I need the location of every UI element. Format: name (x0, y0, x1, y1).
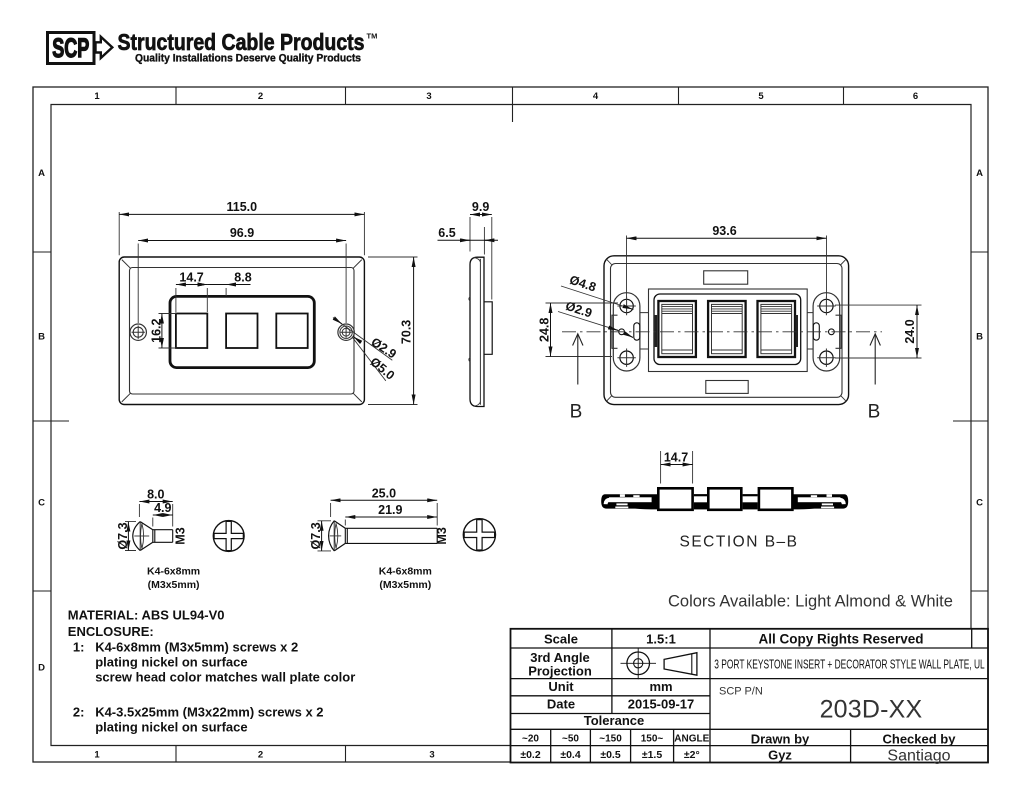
svg-text:Colors Available: Light Almond: Colors Available: Light Almond & White (668, 593, 953, 611)
svg-text:MATERIAL: ABS UL94-V0: MATERIAL: ABS UL94-V0 (68, 608, 225, 623)
svg-text:1: 1 (94, 91, 100, 102)
svg-text:All Copy Rights Reserved: All Copy Rights Reserved (758, 632, 923, 647)
svg-text:93.6: 93.6 (712, 224, 736, 238)
svg-text:24.8: 24.8 (538, 318, 552, 342)
svg-text:screw head color matches wall: screw head color matches wall plate colo… (95, 670, 355, 685)
svg-text:Gyz: Gyz (768, 748, 792, 763)
svg-text:1:: 1: (73, 640, 85, 655)
svg-text:±0.4: ±0.4 (560, 749, 581, 761)
svg-text:Unit: Unit (548, 679, 574, 694)
svg-text:K4-6x8mm: K4-6x8mm (379, 565, 432, 577)
svg-text:16.2: 16.2 (149, 318, 163, 342)
svg-text:ENCLOSURE:: ENCLOSURE: (68, 624, 154, 639)
svg-text:14.7: 14.7 (664, 450, 688, 464)
svg-text:4: 4 (593, 91, 599, 102)
svg-text:Projection: Projection (528, 664, 592, 679)
svg-text:M3: M3 (435, 527, 449, 544)
svg-text:plating nickel on surface: plating nickel on surface (95, 720, 247, 735)
svg-text:±1.5: ±1.5 (642, 749, 663, 761)
svg-text:2: 2 (258, 91, 263, 102)
svg-text:Checked by: Checked by (883, 731, 957, 746)
svg-text:ANGLE: ANGLE (674, 733, 709, 744)
svg-text:25.0: 25.0 (372, 486, 396, 500)
svg-text:C: C (38, 498, 45, 509)
svg-text:203D-XX: 203D-XX (820, 696, 923, 724)
svg-text:B: B (976, 332, 983, 343)
svg-text:1.5:1: 1.5:1 (646, 631, 676, 646)
svg-text:9.9: 9.9 (472, 200, 489, 214)
svg-text:B: B (570, 402, 583, 423)
svg-text:SECTION B–B: SECTION B–B (680, 534, 799, 551)
svg-text:~20: ~20 (522, 733, 539, 744)
svg-text:SCP: SCP (52, 33, 89, 63)
svg-text:K4-6x8mm (M3x5mm) screws x 2: K4-6x8mm (M3x5mm) screws x 2 (95, 640, 298, 655)
svg-text:Date: Date (547, 696, 575, 711)
svg-text:3: 3 (426, 91, 431, 102)
svg-text:Santiago: Santiago (887, 747, 950, 764)
svg-text:70.3: 70.3 (399, 320, 413, 344)
svg-text:~50: ~50 (562, 733, 579, 744)
svg-text:A: A (38, 168, 45, 179)
svg-text:M3: M3 (174, 527, 188, 544)
svg-text:2: 2 (258, 750, 263, 761)
svg-text:A: A (976, 168, 983, 179)
svg-text:Quality Installations Deserve: Quality Installations Deserve Quality Pr… (135, 53, 361, 65)
svg-text:SCP P/N: SCP P/N (719, 686, 763, 698)
svg-text:B: B (868, 402, 881, 423)
svg-text:1: 1 (94, 750, 100, 761)
svg-text:21.9: 21.9 (378, 503, 402, 517)
svg-text:Scale: Scale (544, 631, 578, 646)
svg-text:Structured Cable Products: Structured Cable Products (118, 29, 365, 55)
svg-text:8.8: 8.8 (234, 271, 251, 285)
svg-text:6.5: 6.5 (438, 226, 455, 240)
svg-text:B: B (38, 332, 45, 343)
svg-text:Ø7.3: Ø7.3 (116, 522, 130, 549)
svg-text:2015-09-17: 2015-09-17 (628, 696, 695, 711)
svg-text:3 PORT KEYSTONE INSERT + DECOR: 3 PORT KEYSTONE INSERT + DECORATOR STYLE… (714, 658, 984, 672)
svg-text:5: 5 (758, 91, 764, 102)
svg-text:(M3x5mm): (M3x5mm) (379, 579, 431, 591)
svg-text:C: C (976, 498, 983, 509)
svg-text:K4-6x8mm: K4-6x8mm (147, 566, 200, 578)
svg-text:8.0: 8.0 (147, 488, 164, 502)
svg-text:3: 3 (429, 750, 434, 761)
svg-text:14.7: 14.7 (179, 271, 203, 285)
svg-text:±0.2: ±0.2 (520, 749, 541, 761)
svg-text:TM: TM (367, 32, 378, 41)
svg-text:2:: 2: (73, 705, 85, 720)
svg-text:mm: mm (649, 679, 672, 694)
svg-text:Drawn by: Drawn by (751, 731, 810, 746)
svg-text:24.0: 24.0 (903, 319, 917, 343)
svg-text:K4-3.5x25mm (M3x22mm) screws: K4-3.5x25mm (M3x22mm) screws x 2 (95, 705, 323, 720)
svg-text:96.9: 96.9 (230, 226, 254, 240)
svg-text:Ø7.3: Ø7.3 (309, 522, 323, 549)
svg-text:D: D (38, 663, 45, 674)
svg-text:~150: ~150 (599, 733, 622, 744)
svg-text:±0.5: ±0.5 (600, 749, 621, 761)
svg-text:plating nickel on surface: plating nickel on surface (95, 655, 247, 670)
svg-text:±2°: ±2° (684, 749, 700, 761)
svg-text:4.9: 4.9 (154, 501, 171, 515)
svg-text:6: 6 (913, 91, 918, 102)
svg-text:115.0: 115.0 (227, 200, 258, 214)
svg-text:(M3x5mm): (M3x5mm) (148, 579, 200, 591)
svg-text:150~: 150~ (641, 733, 664, 744)
svg-text:Tolerance: Tolerance (584, 713, 644, 728)
